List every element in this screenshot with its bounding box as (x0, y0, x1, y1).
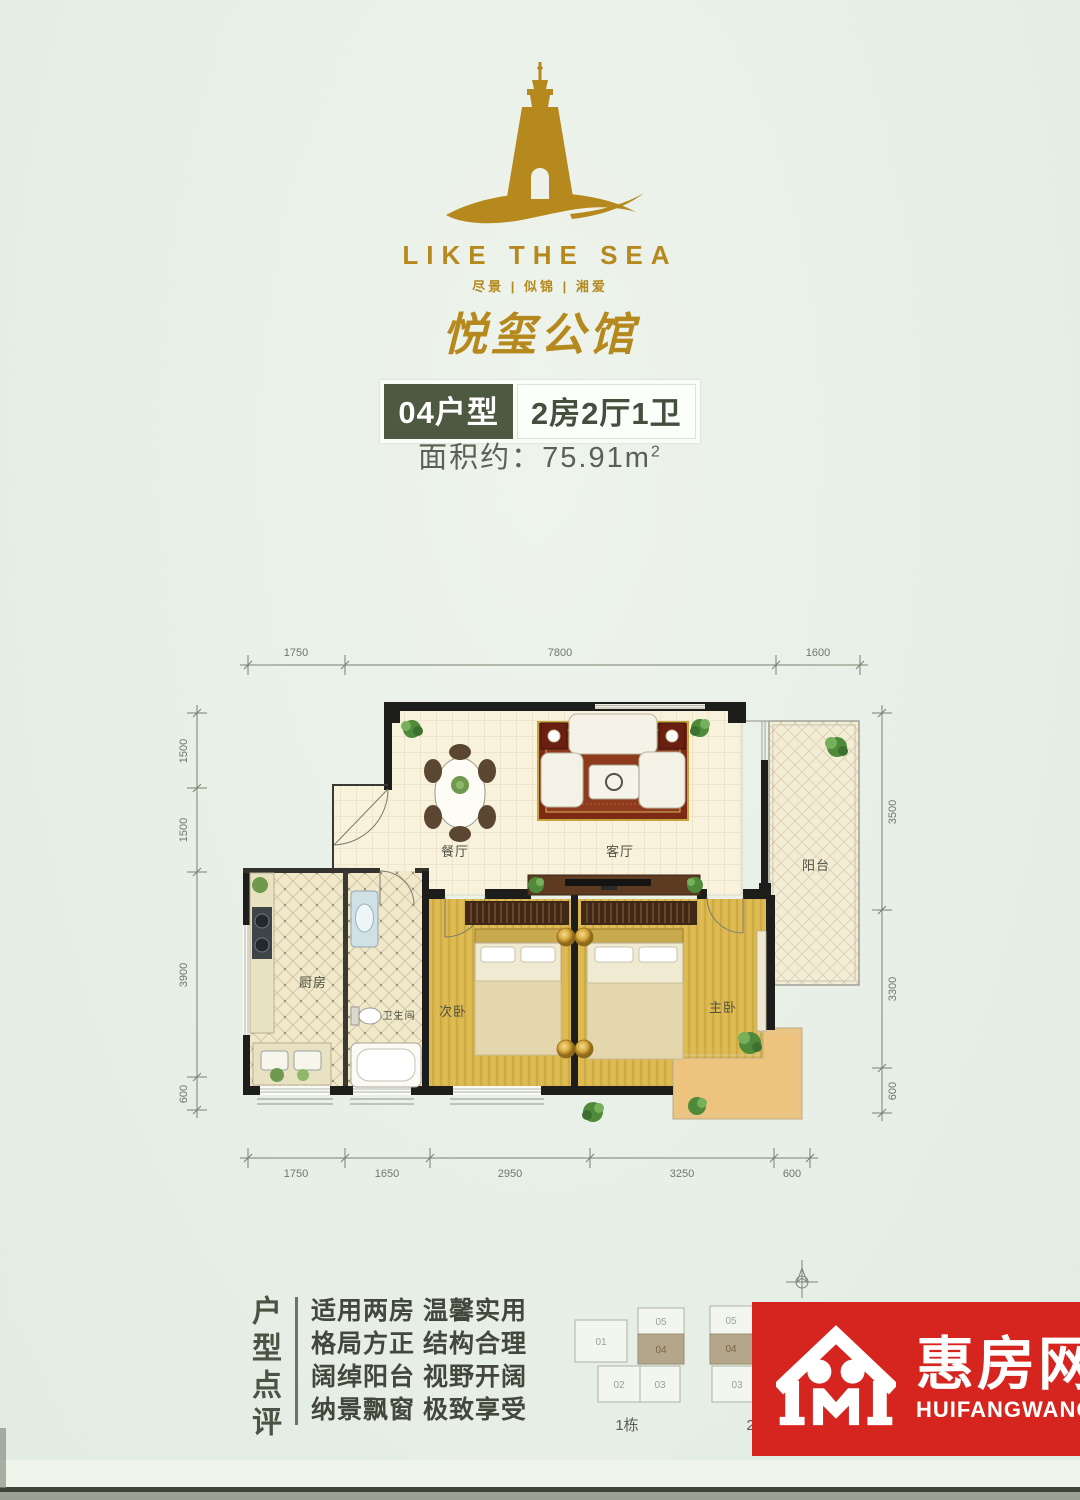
balcony-floor (769, 721, 859, 985)
dim-label: 7800 (548, 647, 572, 659)
building1-label: 1栋 (615, 1416, 638, 1434)
dim-label: 3900 (178, 963, 190, 987)
unit-label: 03 (654, 1380, 666, 1391)
tv-cabinet (528, 875, 700, 895)
brand-logo: LIKE THE SEA 尽景 | 似锦 | 湘爱 悦玺公馆 (0, 62, 1080, 363)
watermark-brand-cn: 惠房网 (916, 1335, 1080, 1395)
unit-label: 01 (595, 1337, 607, 1348)
review-line: 纳景飘窗 极致享受 (311, 1394, 527, 1427)
house-icon (776, 1321, 896, 1437)
unit-label: 02 (613, 1380, 625, 1391)
watermark-logo: 惠房网 HUIFANGWANG (752, 1302, 1080, 1456)
building1-outline (575, 1308, 684, 1402)
dim-label: 1600 (806, 647, 830, 659)
review-line: 格局方正 结构合理 (311, 1328, 527, 1361)
dim-label: 1500 (178, 818, 190, 842)
dim-label: 1750 (284, 647, 308, 659)
dim-label: 2950 (498, 1168, 522, 1180)
watermark-brand-latin: HUIFANGWANG (916, 1397, 1080, 1423)
area-superscript: 2 (651, 443, 662, 460)
dim-label: 1650 (375, 1168, 399, 1180)
unit-area-text: 面积约：75.91m2 (0, 434, 1080, 476)
unit-type-badge: 04户型 (384, 384, 512, 439)
unit-layout-badge: 2房2厅1卫 (517, 384, 696, 439)
dim-label: 3250 (670, 1168, 694, 1180)
logo-brand-name: 悦玺公馆 (0, 298, 1080, 363)
dim-label: 600 (783, 1168, 801, 1180)
dim-label: 1750 (284, 1168, 308, 1180)
room-label-kitchen: 厨房 (299, 975, 327, 990)
unit-label: 05 (655, 1317, 667, 1328)
unit-label: 05 (725, 1316, 737, 1327)
dim-label: 600 (178, 1085, 190, 1103)
bed-secondary (475, 929, 561, 1055)
wardrobes (465, 901, 697, 925)
dim-label: 3300 (887, 977, 899, 1001)
review-title: 户型点评 (243, 1295, 283, 1443)
review-line: 适用两房 温馨实用 (311, 1295, 527, 1328)
room-label-bath: 卫生间 (383, 1009, 416, 1022)
bottom-strip-light (0, 1460, 1080, 1487)
room-label-balcony: 阳台 (802, 858, 830, 873)
review-line: 阔绰阳台 视野开阔 (311, 1361, 527, 1394)
area-value: 面积约：75.91m (418, 442, 651, 474)
unit-label-highlighted: 04 (725, 1344, 737, 1355)
logo-english-name: LIKE THE SEA (0, 240, 1080, 271)
dim-label: 600 (887, 1082, 899, 1100)
room-label-bed2: 次卧 (439, 1004, 467, 1019)
unit-review: 户型点评 适用两房 温馨实用 格局方正 结构合理 阔绰阳台 视野开阔 纳景飘窗 … (243, 1295, 527, 1443)
room-label-master: 主卧 (709, 1000, 737, 1015)
sofa-set (538, 714, 688, 820)
room-label-dining: 餐厅 (441, 844, 469, 859)
review-divider (295, 1297, 298, 1425)
logo-tagline: 尽景 | 似锦 | 湘爱 (0, 276, 1080, 295)
unit-label-highlighted: 04 (655, 1345, 667, 1356)
dim-label: 1500 (178, 739, 190, 763)
bed-master (587, 929, 683, 1059)
lighthouse-icon (420, 62, 660, 240)
unit-label: 03 (731, 1380, 743, 1391)
room-label-living: 客厅 (606, 844, 634, 859)
bottom-strip-dark (0, 1492, 1080, 1500)
floor-plan: 餐厅 客厅 阳台 厨房 卫生间 次卧 主卧 1750 7800 1600 150… (165, 625, 910, 1195)
left-edge-shadow (0, 1428, 6, 1488)
dim-label: 3500 (887, 800, 899, 824)
